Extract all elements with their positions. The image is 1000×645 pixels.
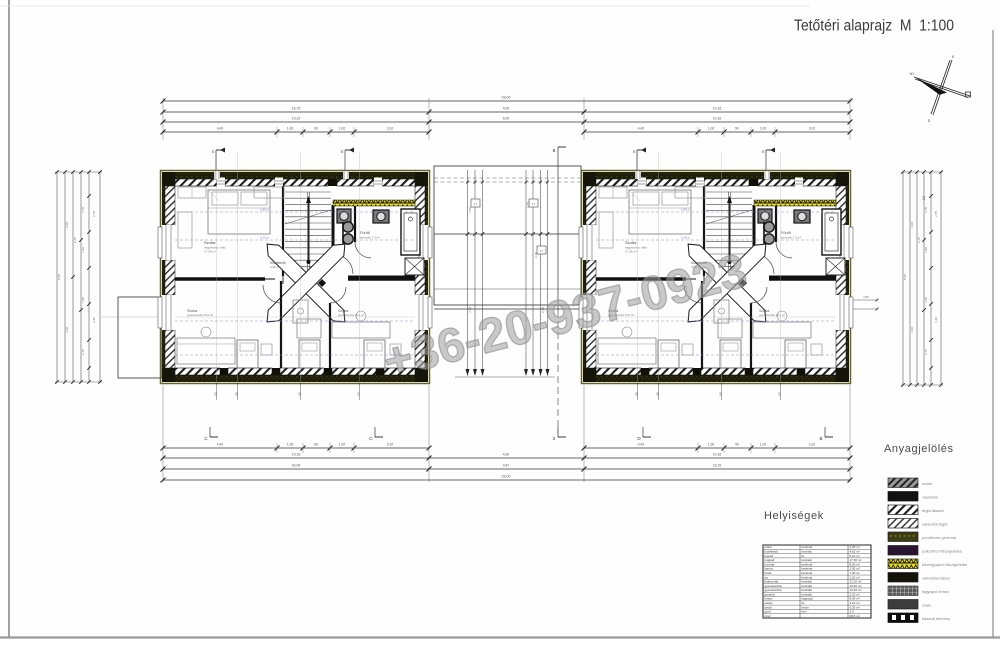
svg-text:porotherm gerenda: porotherm gerenda	[922, 535, 957, 540]
svg-text:3,10: 3,10	[387, 443, 394, 447]
svg-text:1,00: 1,00	[339, 127, 346, 131]
svg-text:2,75: 2,75	[934, 211, 938, 217]
svg-text:válaszfal tégla: válaszfal tégla	[922, 522, 948, 527]
svg-text:kerámia 7,3 m²: kerámia 7,3 m²	[781, 236, 801, 240]
svg-text:90: 90	[735, 443, 739, 447]
svg-text:gyerekszoba 12,2 m²: gyerekszoba 12,2 m²	[759, 313, 785, 317]
svg-text:sóder: sóder	[922, 481, 933, 486]
svg-text:vakolatrendszer: vakolatrendszer	[922, 576, 951, 581]
svg-text:90: 90	[719, 392, 723, 396]
svg-text:vasbeton: vasbeton	[922, 495, 938, 500]
svg-text:90: 90	[214, 392, 218, 396]
svg-text:98,5 m²: 98,5 m²	[850, 614, 860, 618]
svg-text:3,10: 3,10	[809, 443, 816, 447]
svg-text:90: 90	[235, 392, 239, 396]
svg-text:4,10: 4,10	[910, 327, 914, 333]
svg-text:8,46: 8,46	[57, 274, 61, 280]
svg-text:0,87: 0,87	[503, 464, 510, 468]
svg-text:E: E	[762, 149, 765, 154]
svg-text:falazott kémény: falazott kémény	[922, 616, 950, 621]
svg-text:90: 90	[777, 392, 781, 396]
svg-text:1,06: 1,06	[708, 443, 715, 447]
svg-text:7,30: 7,30	[468, 307, 472, 313]
svg-text:E: E	[633, 149, 636, 154]
svg-text:1,06: 1,06	[708, 127, 715, 131]
svg-text:10,16: 10,16	[713, 107, 722, 111]
svg-text:1,00: 1,00	[339, 443, 346, 447]
svg-text:7,30: 7,30	[468, 207, 472, 213]
svg-text:2,5: 2,5	[922, 196, 926, 201]
svg-text:42,06: 42,06	[292, 464, 301, 468]
svg-text:Fürdő: Fürdő	[781, 231, 791, 235]
svg-text:90: 90	[656, 392, 660, 396]
svg-text:28,00: 28,00	[502, 96, 511, 100]
svg-text:NY: NY	[910, 72, 916, 76]
svg-text:10,16: 10,16	[713, 117, 722, 121]
svg-text:28,00: 28,00	[502, 475, 511, 479]
svg-text:4,40: 4,40	[217, 443, 224, 447]
svg-text:1,06: 1,06	[287, 443, 294, 447]
svg-text:kerámia 7,3 m²: kerámia 7,3 m²	[360, 236, 380, 240]
svg-text:8,46: 8,46	[903, 274, 907, 280]
svg-text:lam: lam	[802, 610, 807, 614]
svg-text:4,40: 4,40	[638, 127, 645, 131]
svg-text:2,19 m: 2,19 m	[681, 236, 691, 240]
svg-text:Fürdő: Fürdő	[360, 231, 370, 235]
svg-text:össz:: össz:	[765, 614, 772, 618]
svg-text:B: B	[819, 436, 822, 441]
svg-text:1,90 m: 1,90 m	[260, 208, 270, 212]
svg-text:B: B	[553, 148, 556, 153]
svg-text:4,00: 4,00	[503, 107, 510, 111]
svg-text:6,00: 6,00	[503, 117, 510, 121]
svg-text:2,75: 2,75	[917, 237, 921, 243]
svg-text:tégla falazat: tégla falazat	[922, 508, 944, 513]
svg-text:1,06: 1,06	[287, 127, 294, 131]
svg-text:polisztirol hőszigetelés: polisztirol hőszigetelés	[922, 549, 962, 554]
svg-text:gyerekszoba 12,2 m²: gyerekszoba 12,2 m²	[338, 313, 364, 317]
svg-text:1,50: 1,50	[863, 295, 869, 299]
svg-text:1,00: 1,00	[760, 443, 767, 447]
svg-text:2,75: 2,75	[526, 202, 530, 208]
svg-text:4,40: 4,40	[638, 443, 645, 447]
svg-text:1,20: 1,20	[81, 247, 85, 253]
svg-text:4,40: 4,40	[217, 127, 224, 131]
svg-text:2,75: 2,75	[81, 349, 85, 355]
svg-text:90: 90	[314, 443, 318, 447]
svg-text:Szoba: Szoba	[625, 240, 637, 245]
svg-text:17,36 m²: 17,36 m²	[625, 250, 637, 254]
svg-text:1,90 m: 1,90 m	[681, 208, 691, 212]
svg-text:17,36 m²: 17,36 m²	[204, 250, 216, 254]
svg-text:3,10: 3,10	[809, 127, 816, 131]
svg-text:1,75: 1,75	[81, 207, 85, 213]
svg-text:90: 90	[735, 127, 739, 131]
svg-text:16,76: 16,76	[713, 464, 722, 468]
svg-text:1,7: 1,7	[474, 202, 478, 206]
svg-text:kőzetgyapot hőszigetelés: kőzetgyapot hőszigetelés	[922, 562, 967, 567]
svg-text:Tetőtéri alaprajz M 1:100: Tetőtéri alaprajz M 1:100	[794, 18, 954, 35]
svg-text:90: 90	[314, 127, 318, 131]
svg-text:Helyiségek: Helyiségek	[764, 510, 824, 522]
svg-text:3,10: 3,10	[387, 127, 394, 131]
svg-text:gyerekszoba 10,5 m²: gyerekszoba 10,5 m²	[187, 313, 213, 317]
svg-text:1,75: 1,75	[924, 207, 928, 213]
svg-text:90: 90	[635, 392, 639, 396]
svg-text:E: E	[212, 149, 215, 154]
svg-text:4,30: 4,30	[503, 453, 510, 457]
svg-text:2,19 m: 2,19 m	[260, 236, 270, 240]
svg-text:1,50: 1,50	[924, 297, 928, 303]
svg-text:2,75: 2,75	[92, 211, 96, 217]
svg-text:10,16: 10,16	[713, 453, 722, 457]
svg-text:Anyagjelölés: Anyagjelölés	[884, 443, 954, 455]
svg-text:16,76: 16,76	[292, 107, 301, 111]
svg-text:1,20: 1,20	[924, 247, 928, 253]
svg-text:fagyapot lemez: fagyapot lemez	[922, 589, 949, 594]
svg-text:1,7: 1,7	[540, 249, 544, 253]
svg-text:4,62 m²: 4,62 m²	[270, 265, 280, 269]
svg-text:2,75: 2,75	[73, 237, 77, 243]
svg-text:3,10: 3,10	[92, 317, 96, 323]
svg-text:1,7: 1,7	[532, 202, 536, 206]
svg-text:90: 90	[298, 392, 302, 396]
svg-text:Szoba: Szoba	[204, 240, 216, 245]
svg-text:E: E	[341, 149, 344, 154]
svg-text:90: 90	[356, 392, 360, 396]
svg-text:2,75: 2,75	[924, 349, 928, 355]
svg-text:2,40: 2,40	[534, 252, 538, 258]
svg-text:zsalu: zsalu	[922, 603, 931, 608]
svg-text:4,10: 4,10	[910, 222, 914, 228]
svg-text:1,50: 1,50	[81, 297, 85, 303]
svg-text:1,00: 1,00	[760, 127, 767, 131]
svg-text:4,10: 4,10	[65, 222, 69, 228]
svg-text:10,16: 10,16	[292, 117, 301, 121]
svg-text:10,16: 10,16	[292, 453, 301, 457]
svg-text:4,10: 4,10	[65, 327, 69, 333]
svg-text:3,10: 3,10	[934, 317, 938, 323]
